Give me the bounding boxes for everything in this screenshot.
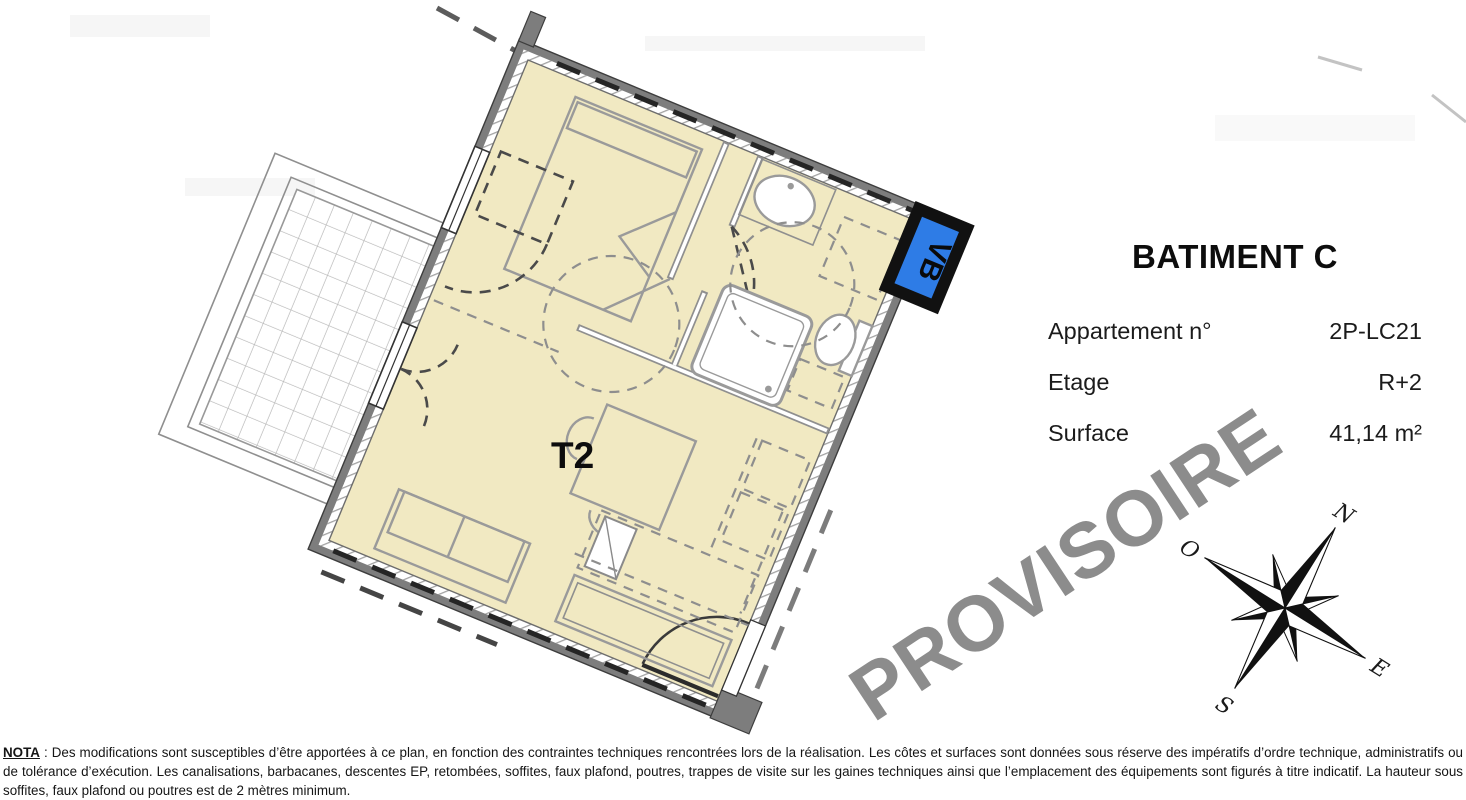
surface-row: Surface 41,14 m² (1048, 420, 1422, 447)
apartment-number-row: Appartement n° 2P-LC21 (1048, 318, 1422, 345)
apartment-number-value: 2P-LC21 (1329, 318, 1422, 345)
compass-north-label: N (1328, 498, 1359, 530)
floor-label: Etage (1048, 369, 1109, 396)
surface-label: Surface (1048, 420, 1129, 447)
floor-row: Etage R+2 (1048, 369, 1422, 396)
building-title: BATIMENT C (1048, 238, 1422, 276)
exterior-dashed-line (437, 8, 527, 57)
compass-south-label: S (1211, 691, 1237, 720)
info-panel: BATIMENT C Appartement n° 2P-LC21 Etage … (1048, 238, 1422, 471)
wall-stub-top (519, 11, 546, 47)
nota-legal-text: NOTA : Des modifications sont susceptibl… (3, 744, 1463, 800)
compass-east-label: E (1365, 653, 1393, 683)
apartment-details: Appartement n° 2P-LC21 Etage R+2 Surface… (1048, 318, 1422, 447)
floor-plan-page: VB T2 N E S O (0, 0, 1466, 800)
apartment: VB (134, 0, 986, 752)
floor-value: R+2 (1378, 369, 1422, 396)
surface-value: 41,14 m² (1329, 420, 1422, 447)
unit-type-label: T2 (551, 435, 594, 476)
nota-label: NOTA (3, 745, 40, 760)
apartment-number-label: Appartement n° (1048, 318, 1212, 345)
nota-body: : Des modifications sont susceptibles d’… (3, 745, 1463, 798)
